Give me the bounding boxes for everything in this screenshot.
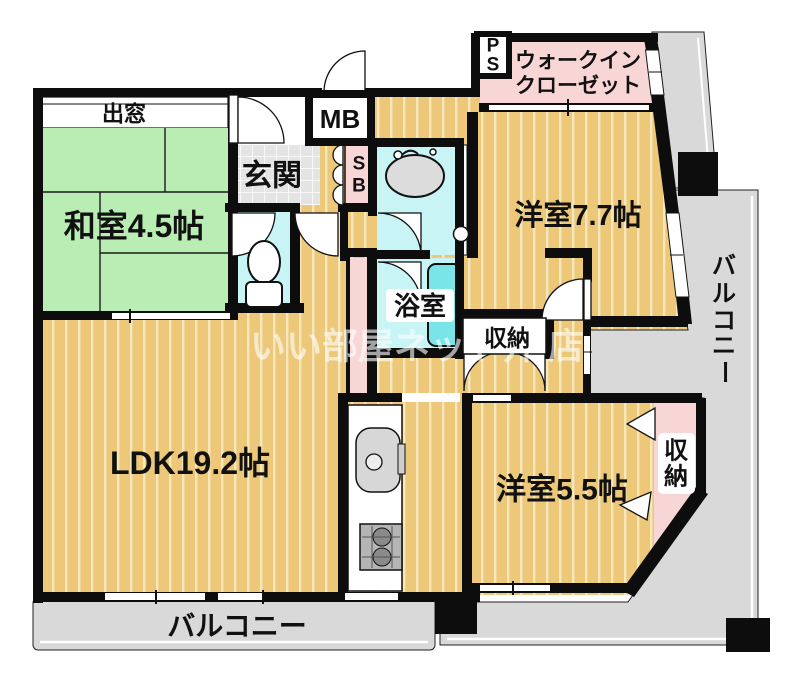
label-genkan: 玄関 xyxy=(242,159,302,193)
label-storage-right-2: 納 xyxy=(664,463,688,491)
label-balcony-right-3: コ xyxy=(712,308,736,335)
label-bathroom: 浴室 xyxy=(394,291,446,321)
yoshitsu77-door-leaf xyxy=(584,279,591,320)
balcony-divider-block-top xyxy=(678,152,718,196)
washer-drain-icon xyxy=(454,227,469,242)
floorplan-page: いい部屋ネット井 店 出窓 和室4.5帖 玄関 MB S B P S ウォークイ… xyxy=(0,0,800,693)
label-yoshitsu77: 洋室7.7帖 xyxy=(514,198,641,232)
label-storage-right-1: 収 xyxy=(664,438,689,465)
label-ps-p: P xyxy=(487,36,500,57)
balcony-corner-block xyxy=(726,618,770,652)
label-balcony-right-4: ニ xyxy=(712,333,736,360)
label-sb-s: S xyxy=(353,154,366,175)
label-sb-b: B xyxy=(352,176,366,197)
label-balcony-bottom: バルコニー xyxy=(167,611,306,642)
floorplan-drawing: いい部屋ネット井 店 出窓 和室4.5帖 玄関 MB S B P S ウォークイ… xyxy=(0,0,800,693)
label-ps-s: S xyxy=(487,55,500,76)
washitsu-door-leaf xyxy=(229,95,238,143)
entrance-door-icon xyxy=(324,51,365,92)
washbasin-icon xyxy=(386,155,444,197)
label-washitsu: 和室4.5帖 xyxy=(64,208,205,244)
label-wic-1: ウォークイン xyxy=(515,50,641,73)
faucet-icon xyxy=(394,151,402,159)
label-wic-2: クローゼット xyxy=(515,74,641,98)
shoe-box-folding-doors-icon xyxy=(333,145,343,205)
label-yoshitsu55: 洋室5.5帖 xyxy=(496,473,628,507)
toilet-icon xyxy=(248,241,280,283)
watermark-text-2: 店 xyxy=(548,326,584,367)
toilet-tank-icon xyxy=(246,282,282,307)
label-balcony-right-5: ー xyxy=(711,360,738,384)
label-balcony-right-2: ル xyxy=(712,281,736,308)
label-mb: MB xyxy=(320,104,360,134)
label-storage-mid: 収納 xyxy=(484,325,530,351)
label-ldk: LDK19.2帖 xyxy=(110,445,270,481)
label-balcony-right-1: バ xyxy=(712,253,736,280)
room-washitsu xyxy=(40,97,228,312)
label-bay-window: 出窓 xyxy=(102,102,146,127)
